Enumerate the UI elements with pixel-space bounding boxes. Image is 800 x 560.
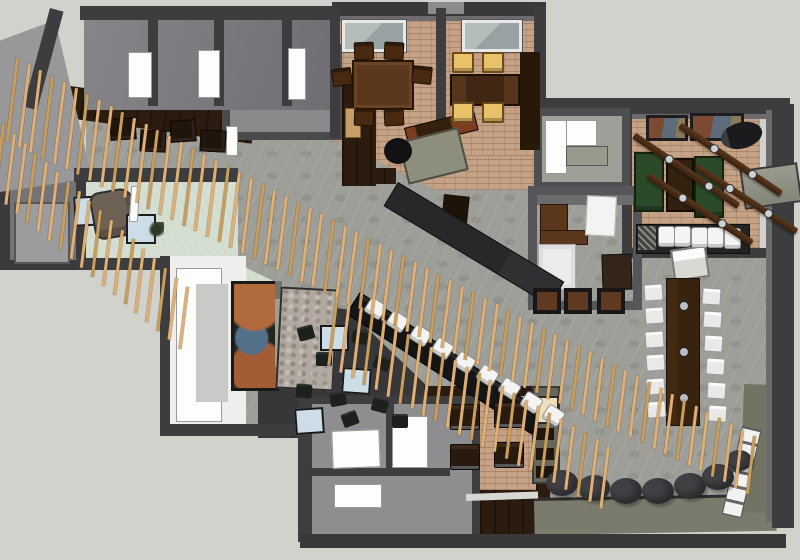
communal-chair-left xyxy=(645,354,665,372)
bar-room-stool xyxy=(691,227,708,248)
dining1-chair xyxy=(384,41,405,60)
office-stool xyxy=(564,288,592,314)
dining2-chair xyxy=(452,102,474,123)
host-chair-black xyxy=(384,138,412,164)
mural-artwork xyxy=(231,281,279,391)
dining1-chair xyxy=(354,108,375,127)
dining1-chair xyxy=(354,42,375,61)
fixture-south-room-3 xyxy=(334,484,382,508)
dining2-chair xyxy=(452,52,474,73)
communal-chair-right xyxy=(706,381,726,399)
wall-north-west-run xyxy=(80,6,336,20)
office-table-white xyxy=(585,195,617,237)
dining2-chair xyxy=(482,52,504,73)
wall-corridor-south xyxy=(160,424,312,436)
dining1-chair xyxy=(331,67,353,88)
communal-chair-left xyxy=(643,283,663,301)
communal-chair-right xyxy=(705,358,725,376)
fixture-south-room-1 xyxy=(331,429,380,469)
counter-pantry-side xyxy=(545,120,567,174)
wall-south-divider-h xyxy=(308,468,450,476)
panel-north-vent xyxy=(428,2,464,14)
entry-plant xyxy=(148,222,164,238)
bar-room-counter-hatch xyxy=(638,226,656,250)
skylight-dining-2 xyxy=(462,20,522,52)
communal-chair-right xyxy=(701,287,721,305)
office-stool xyxy=(597,288,625,314)
communal-chair-right xyxy=(703,311,723,329)
dining2-chair xyxy=(482,102,504,123)
wall-south-run xyxy=(300,534,786,548)
counter-pantry-gray xyxy=(566,146,608,166)
ottoman xyxy=(642,478,674,504)
corridor-inner-band xyxy=(196,284,228,402)
bar-room-stool xyxy=(674,226,691,247)
servery-table xyxy=(169,119,196,143)
ottoman xyxy=(546,470,578,496)
ottoman xyxy=(610,478,642,504)
office-stool xyxy=(533,288,561,314)
lounge-chair xyxy=(295,383,312,398)
office-chair-brown xyxy=(601,253,632,290)
cabinet-dining2-east xyxy=(520,52,540,150)
door-nw-room-3 xyxy=(288,48,306,100)
lounge-table-2 xyxy=(341,367,372,395)
communal-chair-left xyxy=(645,330,665,348)
host-stand xyxy=(670,245,710,282)
table-hinge-2 xyxy=(679,347,689,357)
communal-chair-left xyxy=(644,307,664,325)
dining1-table xyxy=(352,60,414,110)
booth-chair xyxy=(450,444,480,470)
floorplan-canvas[interactable] xyxy=(0,0,800,560)
office-desk-return xyxy=(540,230,588,245)
door-nw-room-2 xyxy=(198,50,220,98)
door-nw-room-1 xyxy=(128,52,152,98)
communal-chair-right xyxy=(704,334,724,352)
lounge-table-3 xyxy=(294,407,325,435)
servery-table xyxy=(199,129,226,152)
dining1-chair xyxy=(384,107,405,126)
lounge-chair xyxy=(329,391,347,408)
door-storage xyxy=(226,126,238,156)
bar-room-stool xyxy=(658,226,675,247)
counter-servery-low xyxy=(342,168,396,184)
table-hinge-1 xyxy=(679,301,689,311)
lounge-chair xyxy=(392,414,408,428)
bar-room-stool xyxy=(707,227,724,248)
dining1-chair xyxy=(411,65,433,85)
